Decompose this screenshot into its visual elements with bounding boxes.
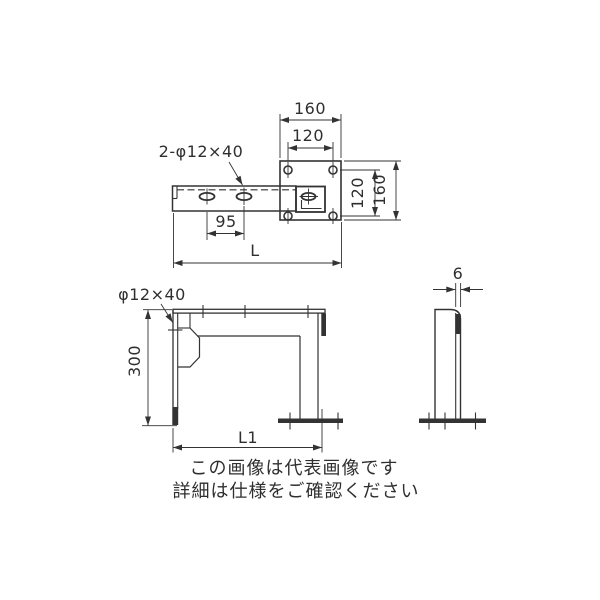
front-view-dimensions [142,304,322,453]
gusset [178,313,200,367]
base-plate-front [278,413,343,430]
dim-hole-pitch-v-label: 120 [350,177,366,209]
dim-overall-length-label: L1 [238,430,258,446]
dim-plate-height-label: 160 [372,174,388,206]
dim-arm-length-label: L [250,243,259,259]
slot-callout-front-label: φ12×40 [118,287,186,303]
notice-line1: この画像は代表画像です [190,460,399,478]
notice-line2: 詳細は仕様をご確認ください [173,483,420,501]
side-view [419,283,486,430]
dim-hole-pitch-h-label: 120 [292,128,324,144]
arm-top-flange [173,309,325,313]
arm-plan [173,186,297,211]
dim-plate-thickness-label: 6 [453,266,464,282]
side-view-dimensions [433,283,483,307]
dim-plate-width-label: 160 [294,101,326,117]
right-post [300,313,326,418]
base-plate-side [419,413,486,430]
plate-edge-thick [455,314,460,334]
product-drawing-image: 160 120 120 160 95 L 2-φ12×40 φ12×40 300… [0,0,600,600]
dim-post-height-label: 300 [127,345,143,377]
slot-ticks [203,305,308,318]
technical-drawing [0,0,600,600]
dim-slot-pitch-label: 95 [215,214,236,230]
arm-end-plate [296,187,325,213]
slot-callout-top-label: 2-φ12×40 [159,144,244,160]
